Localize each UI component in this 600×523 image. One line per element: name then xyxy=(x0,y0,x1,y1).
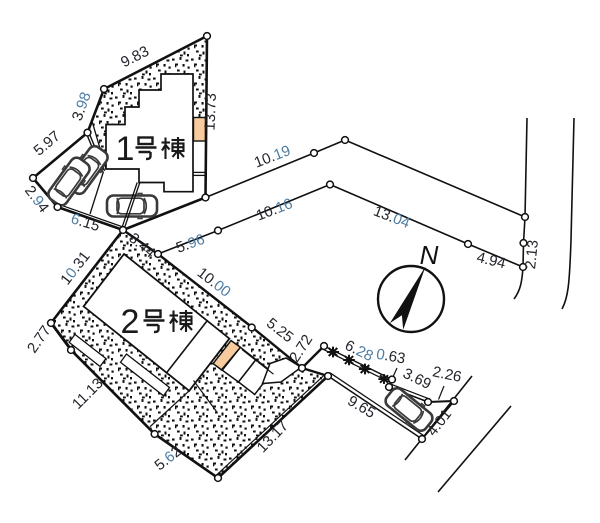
svg-text:1: 1 xyxy=(116,130,135,168)
svg-text:13.73: 13.73 xyxy=(202,93,220,131)
svg-text:2.13: 2.13 xyxy=(522,239,542,270)
svg-text:2: 2 xyxy=(121,303,140,341)
svg-text:N: N xyxy=(420,240,439,270)
